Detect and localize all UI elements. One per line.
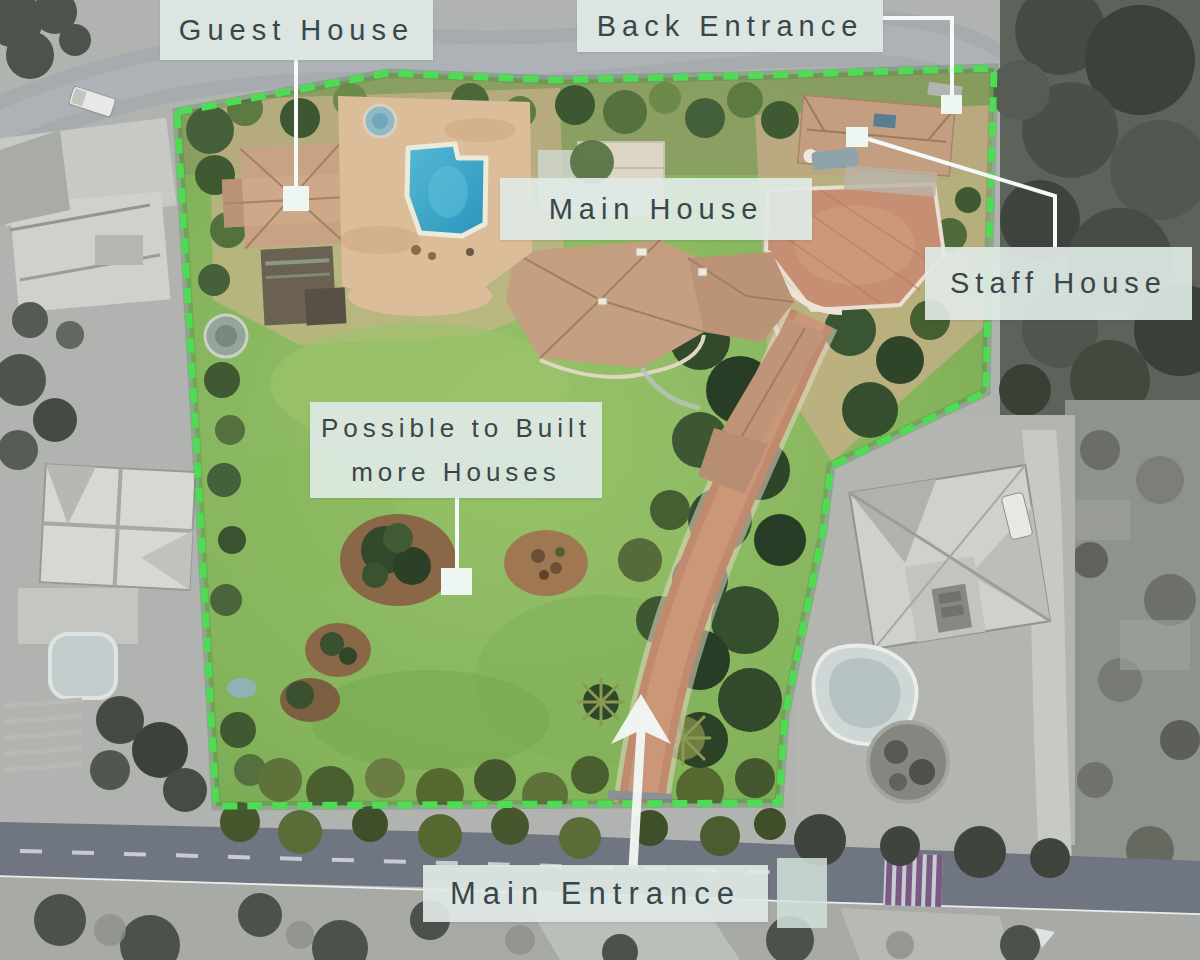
label-possible-build: Possible to Built more Houses — [310, 402, 602, 498]
annotated-aerial-map: Guest House Back Entrance Main House Sta… — [0, 0, 1200, 960]
tree-island-1 — [340, 514, 456, 606]
label-possible-build-line1: Possible to Built — [321, 406, 591, 450]
small-pond — [227, 678, 257, 698]
label-guest-house-text: Guest House — [179, 14, 414, 47]
label-main-entrance: Main Entrance — [423, 865, 768, 922]
neighbor-pool-left — [50, 634, 116, 698]
trees-top-right — [990, 0, 1200, 450]
label-back-entrance: Back Entrance — [577, 0, 883, 52]
label-main-house: Main House — [500, 178, 812, 240]
round-patio — [868, 722, 948, 802]
tree-island-3 — [305, 623, 371, 677]
entry-slab — [777, 858, 827, 928]
label-possible-build-line2: more Houses — [351, 450, 561, 494]
tree-island-2 — [504, 530, 588, 596]
label-guest-house: Guest House — [160, 0, 433, 60]
label-back-entrance-text: Back Entrance — [597, 10, 864, 43]
label-main-entrance-text: Main Entrance — [450, 876, 741, 912]
marker-staff-house — [846, 127, 868, 147]
marker-guest-house — [283, 186, 309, 211]
marker-back-entrance — [941, 95, 962, 114]
marker-possible-build — [441, 568, 472, 595]
label-staff-house-text: Staff House — [950, 267, 1167, 300]
label-staff-house: Staff House — [925, 247, 1192, 320]
label-main-house-text: Main House — [549, 193, 764, 226]
solar-panel — [873, 113, 896, 128]
